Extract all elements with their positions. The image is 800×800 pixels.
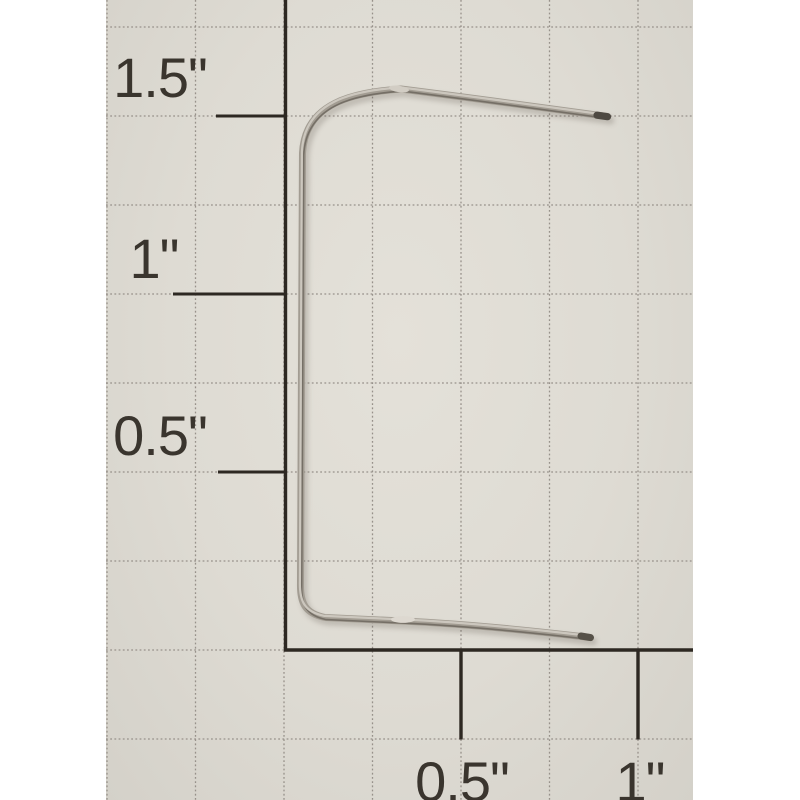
wire-body xyxy=(300,89,607,638)
measurement-photo: 1.5" 1" 0.5" 0.5" 1" xyxy=(106,0,693,800)
wire-specular-spot xyxy=(391,616,415,623)
wire-bottom-tip xyxy=(581,636,591,638)
wire-dark-edge xyxy=(302,91,609,640)
wire-shadow xyxy=(303,93,610,642)
wire-top-tip xyxy=(597,115,608,117)
ruler-label-bottom-1: 1" xyxy=(615,750,664,800)
ruler-label-left-0-5: 0.5" xyxy=(113,404,207,467)
photo-area: 1.5" 1" 0.5" 0.5" 1" xyxy=(106,0,693,800)
wire-clip xyxy=(300,84,611,641)
product-photo-canvas: 1.5" 1" 0.5" 0.5" 1" xyxy=(0,0,800,800)
ruler-label-left-1: 1" xyxy=(129,227,178,290)
ruler-label-left-1-5: 1.5" xyxy=(113,46,207,109)
ruler-label-bottom-0-5: 0.5" xyxy=(415,750,509,800)
wire-highlight xyxy=(300,87,607,636)
